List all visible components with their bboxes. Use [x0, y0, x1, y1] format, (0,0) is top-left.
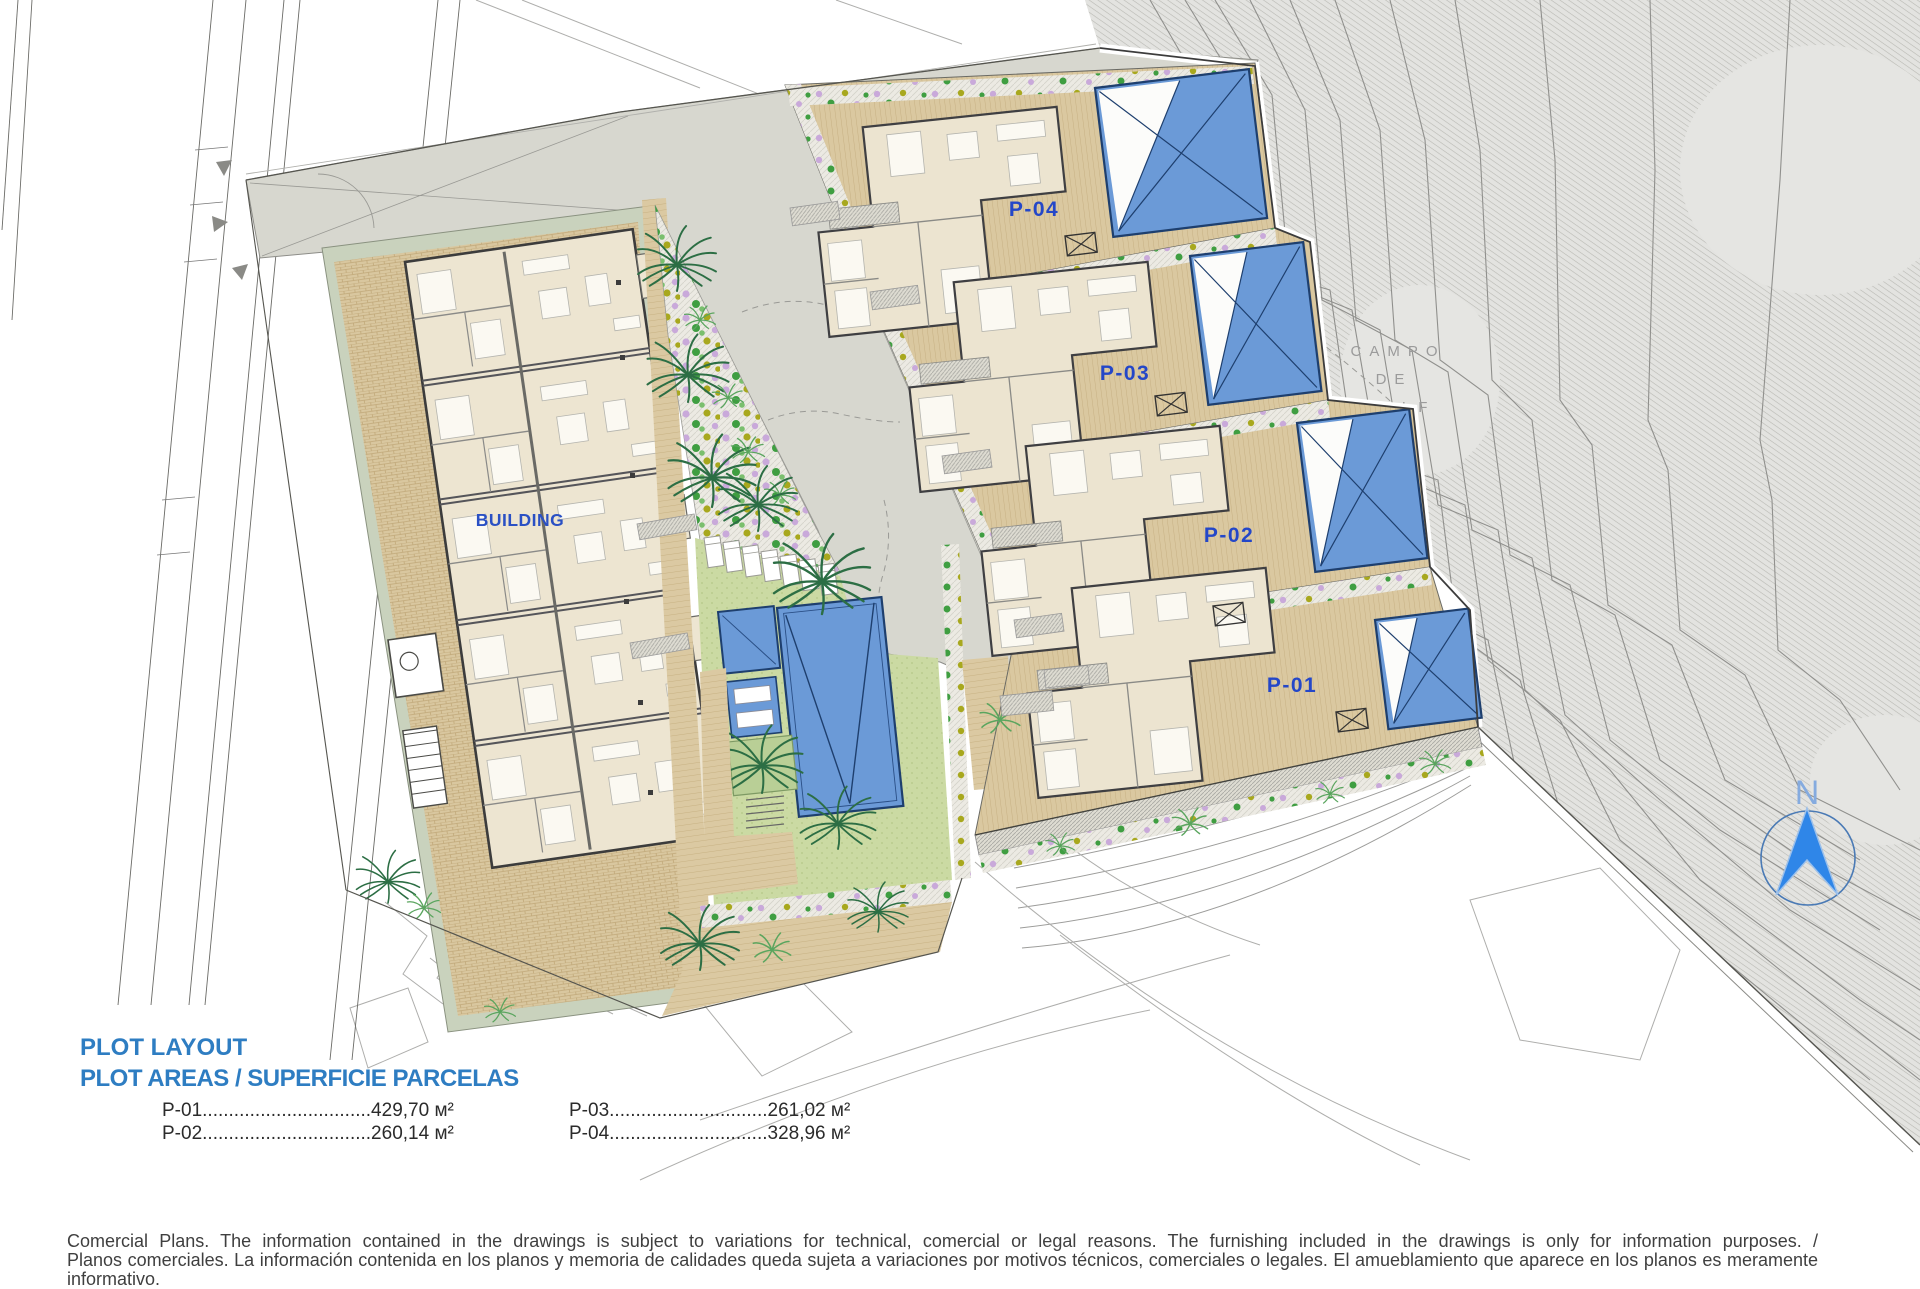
svg-text:P-02: P-02: [1204, 524, 1254, 547]
svg-text:P-01: P-01: [1267, 674, 1317, 697]
svg-text:BUILDING: BUILDING: [476, 510, 565, 530]
svg-text:DE: DE: [1376, 371, 1413, 388]
svg-text:CAMPO: CAMPO: [1350, 343, 1445, 360]
svg-text:P-03: P-03: [1100, 362, 1150, 385]
svg-text:N: N: [1795, 774, 1820, 812]
svg-text:P-04: P-04: [1009, 198, 1059, 221]
